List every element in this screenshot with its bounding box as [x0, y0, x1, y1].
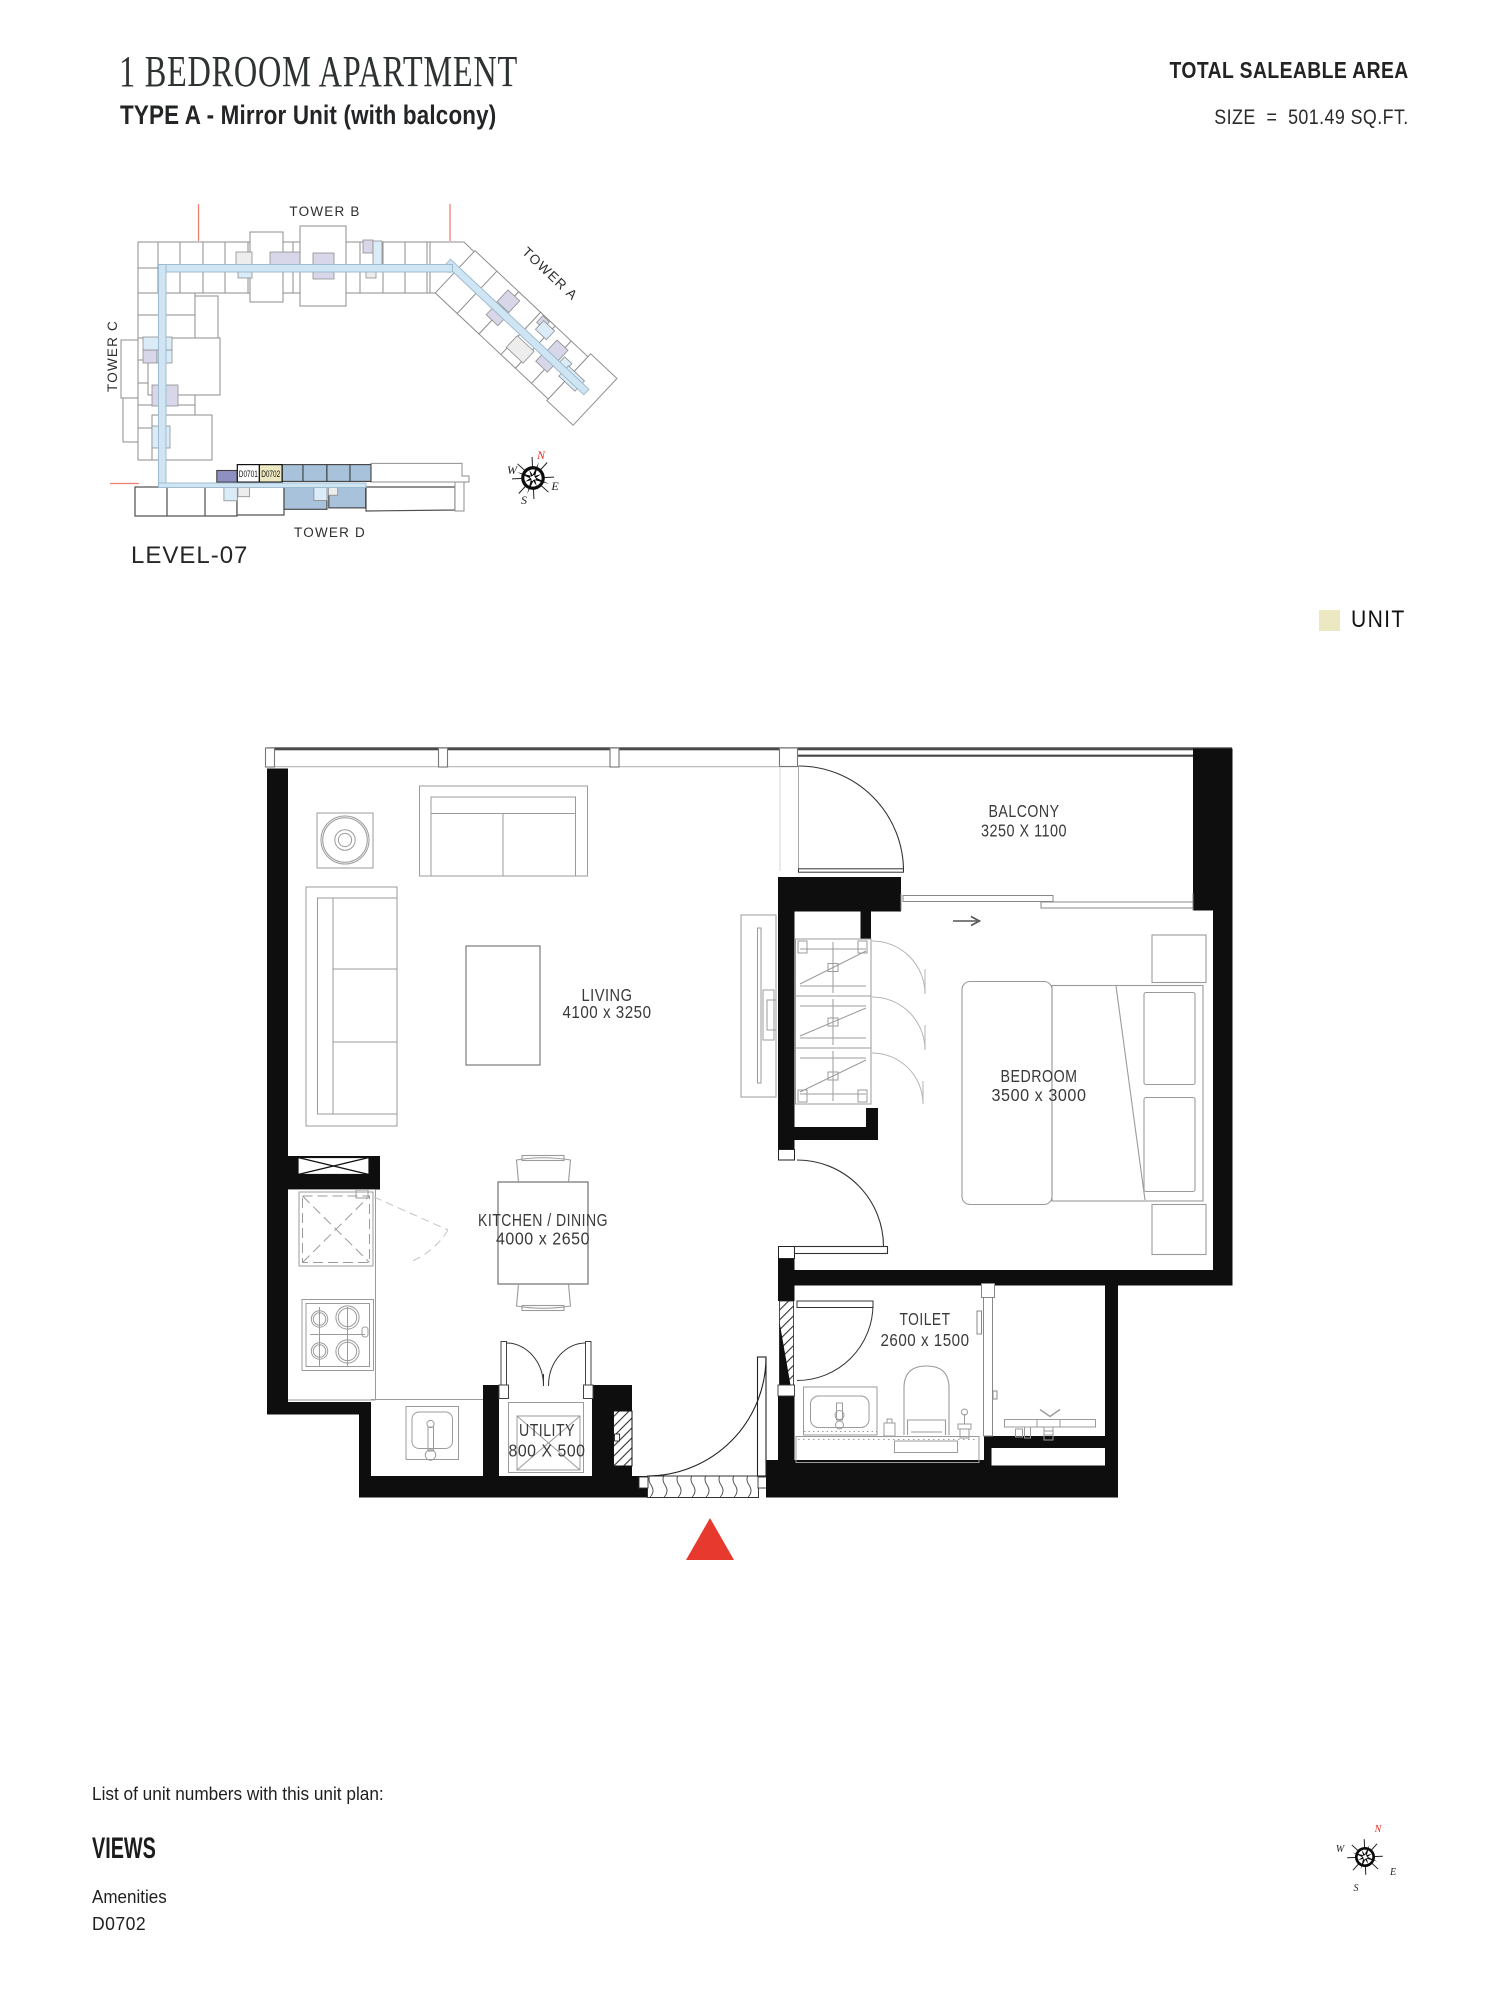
svg-text:3500 x 3000: 3500 x 3000	[992, 1085, 1087, 1105]
svg-text:TOILET: TOILET	[900, 1309, 951, 1329]
svg-text:TOWER C: TOWER C	[105, 320, 120, 392]
svg-text:BEDROOM: BEDROOM	[1001, 1066, 1078, 1086]
svg-text:4100 x 3250: 4100 x 3250	[563, 1002, 652, 1022]
svg-text:E: E	[1389, 1867, 1396, 1878]
svg-text:W: W	[1336, 1844, 1346, 1855]
svg-text:D0702: D0702	[261, 469, 280, 479]
svg-text:D0701: D0701	[239, 469, 258, 479]
svg-text:3250 X 1100: 3250 X 1100	[981, 821, 1067, 841]
svg-text:2600 x 1500: 2600 x 1500	[881, 1330, 970, 1350]
svg-text:UTILITY: UTILITY	[519, 1420, 575, 1440]
svg-text:4000 x 2650: 4000 x 2650	[496, 1229, 590, 1249]
svg-text:TOWER B: TOWER B	[289, 204, 360, 219]
svg-text:800 X 500: 800 X 500	[509, 1441, 586, 1461]
svg-text:KITCHEN / DINING: KITCHEN / DINING	[478, 1210, 608, 1230]
svg-text:LEVEL-07: LEVEL-07	[131, 542, 248, 569]
svg-text:TOWER A: TOWER A	[519, 244, 581, 303]
svg-text:E: E	[550, 479, 559, 493]
svg-text:W: W	[507, 463, 518, 477]
svg-text:BALCONY: BALCONY	[989, 801, 1060, 821]
svg-text:N: N	[1374, 1824, 1383, 1835]
svg-text:S: S	[1354, 1883, 1359, 1894]
svg-text:S: S	[521, 493, 527, 507]
svg-text:N: N	[536, 448, 546, 462]
svg-text:TOWER D: TOWER D	[294, 525, 366, 540]
